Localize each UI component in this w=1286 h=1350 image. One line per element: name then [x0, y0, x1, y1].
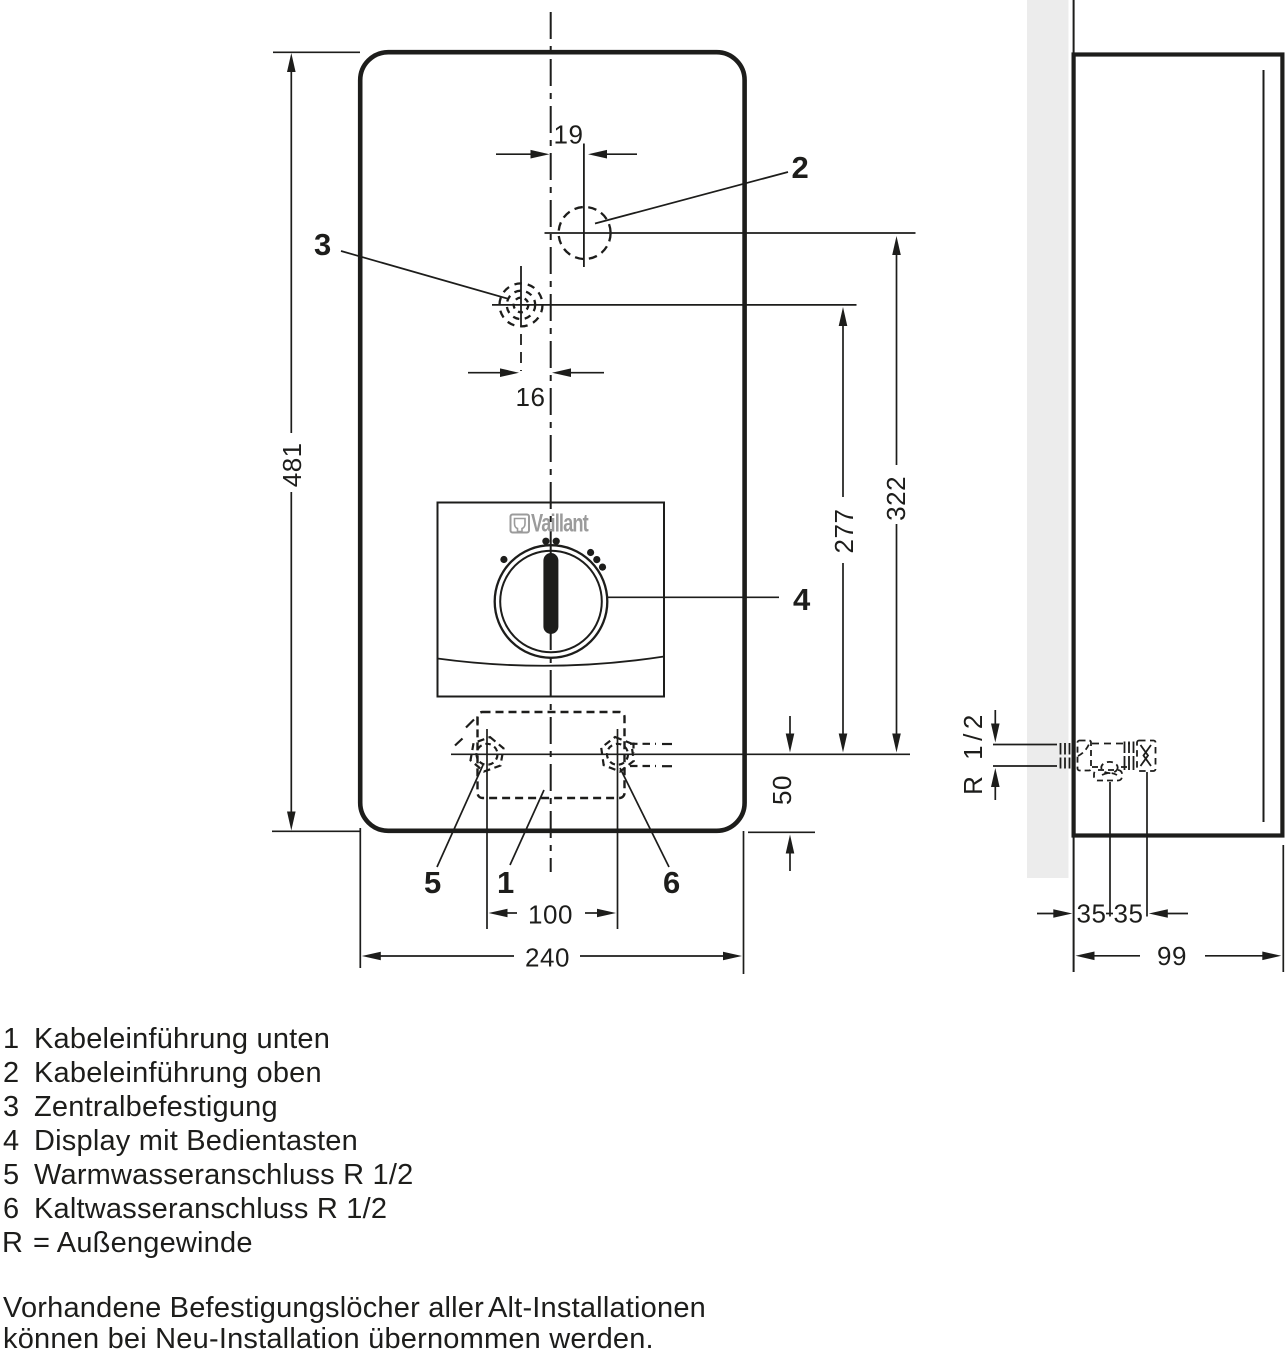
svg-text:4: 4	[793, 582, 811, 617]
svg-text:können bei Neu-Installation üb: können bei Neu-Installation übernommen w…	[3, 1323, 654, 1350]
svg-text:2: 2	[3, 1057, 19, 1089]
svg-text:16: 16	[516, 382, 546, 412]
svg-text:1: 1	[497, 865, 514, 900]
svg-text:Zentralbefestigung: Zentralbefestigung	[34, 1091, 278, 1123]
svg-text:35: 35	[1114, 899, 1144, 929]
svg-text:5: 5	[3, 1159, 19, 1191]
svg-text:3: 3	[3, 1091, 19, 1123]
svg-text:5: 5	[424, 865, 441, 900]
svg-text:3: 3	[314, 227, 331, 262]
svg-text:Display mit Bedientasten: Display mit Bedientasten	[34, 1125, 358, 1157]
svg-text:19: 19	[554, 120, 584, 150]
svg-text:35: 35	[1077, 899, 1107, 929]
svg-text:2: 2	[792, 150, 809, 185]
svg-text:Kabeleinführung unten: Kabeleinführung unten	[34, 1023, 330, 1055]
svg-text:R 1/2: R 1/2	[958, 710, 988, 795]
svg-text:50: 50	[767, 775, 797, 805]
svg-text:R: R	[2, 1227, 23, 1259]
svg-text:240: 240	[525, 943, 570, 973]
svg-text:322: 322	[881, 476, 911, 521]
svg-text:100: 100	[528, 900, 573, 930]
svg-text:Warmwasseranschluss R 1/2: Warmwasseranschluss R 1/2	[34, 1159, 413, 1191]
svg-text:= Außengewinde: = Außengewinde	[33, 1227, 253, 1259]
svg-text:99: 99	[1157, 941, 1187, 971]
svg-text:277: 277	[829, 509, 859, 554]
svg-text:Vaillant: Vaillant	[531, 509, 589, 538]
svg-text:Vorhandene Befestigungslöcher: Vorhandene Befestigungslöcher allerAlt-I…	[3, 1292, 706, 1324]
svg-text:481: 481	[277, 442, 307, 487]
svg-text:1: 1	[3, 1023, 19, 1055]
svg-text:Kaltwasseranschluss R 1/2: Kaltwasseranschluss R 1/2	[34, 1193, 387, 1225]
svg-text:6: 6	[663, 865, 680, 900]
svg-text:6: 6	[3, 1193, 19, 1225]
svg-text:4: 4	[3, 1125, 19, 1157]
svg-text:Kabeleinführung oben: Kabeleinführung oben	[34, 1057, 322, 1089]
